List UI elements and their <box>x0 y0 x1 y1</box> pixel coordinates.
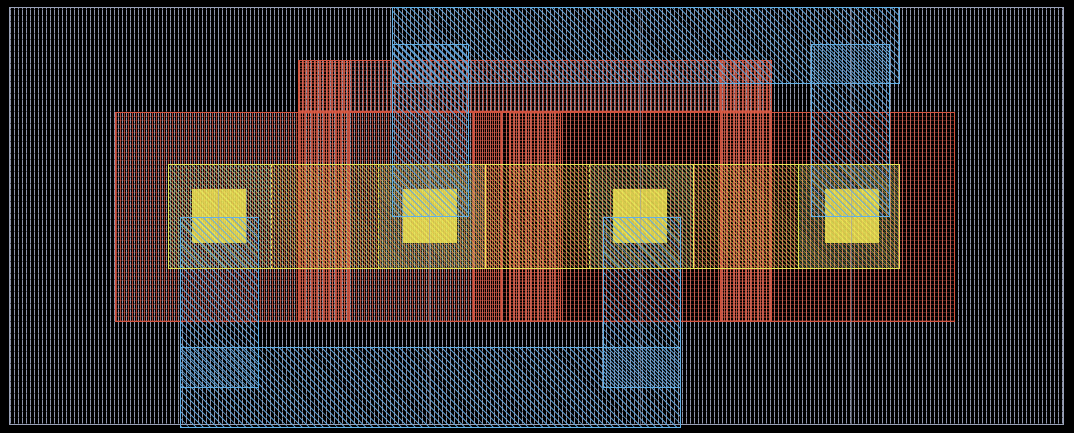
grid-line-1 <box>218 7 219 425</box>
layout-canvas[interactable] <box>0 0 1074 433</box>
active-band-divider-6 <box>798 164 799 269</box>
grid-line-2 <box>429 7 430 425</box>
grid-line-4 <box>851 7 852 425</box>
active-band-divider-3 <box>485 164 486 269</box>
active-band-divider-5 <box>693 164 694 269</box>
active-band-outline[interactable] <box>168 164 900 269</box>
grid-line-3 <box>640 7 641 425</box>
active-band-divider-1 <box>271 164 272 269</box>
active-band-divider-2 <box>378 164 379 269</box>
metal-rail-bottom[interactable] <box>180 347 681 428</box>
active-band-divider-4 <box>589 164 590 269</box>
